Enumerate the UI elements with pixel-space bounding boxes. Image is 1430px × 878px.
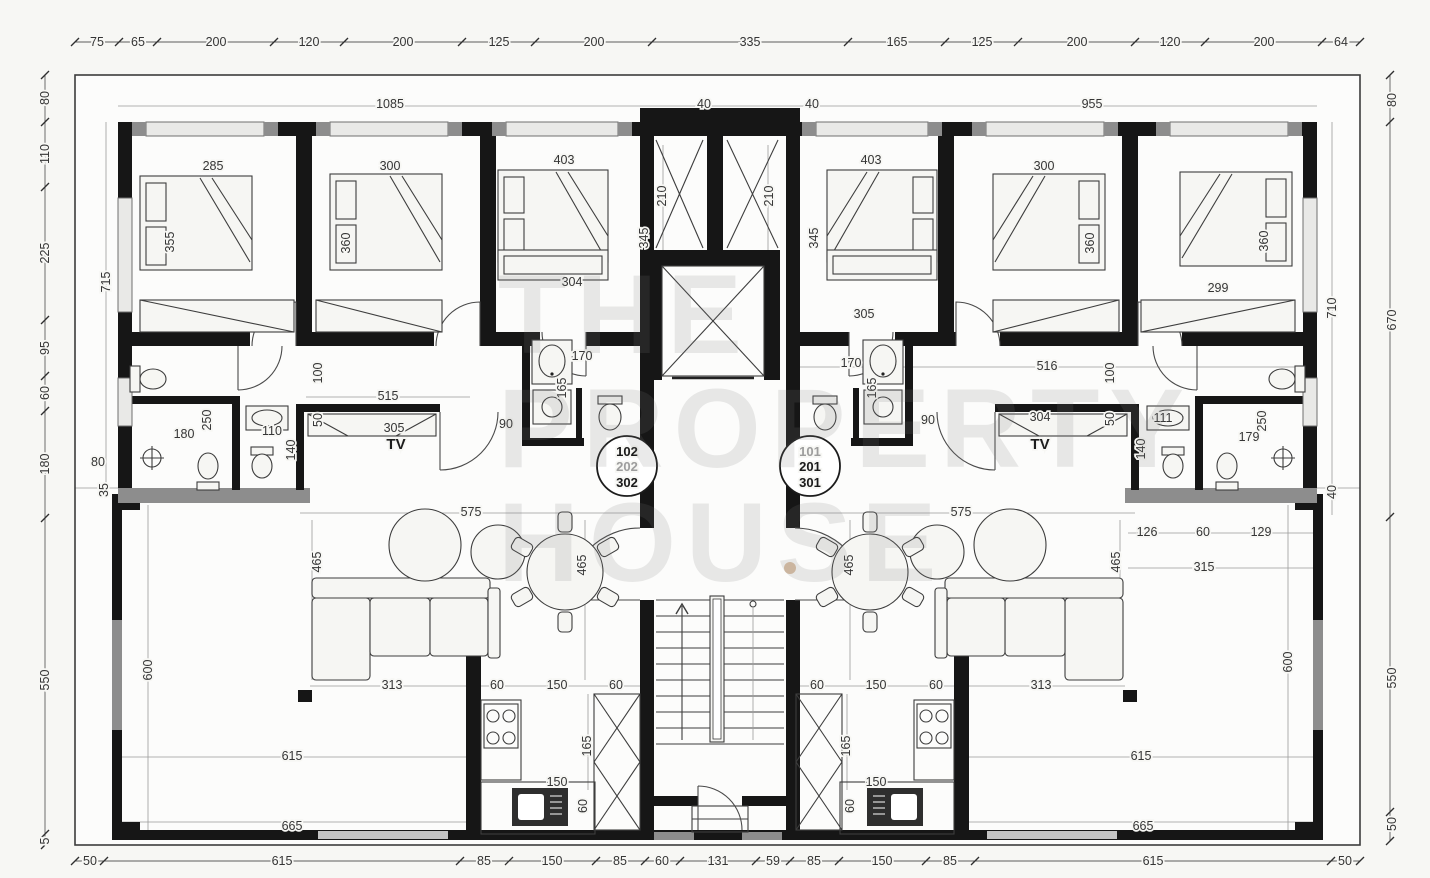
dim-label: 304 bbox=[562, 275, 583, 289]
dim-label: 516 bbox=[1037, 359, 1058, 373]
dim-label: 360 bbox=[1257, 231, 1271, 252]
dim-label: 345 bbox=[807, 228, 821, 249]
dim-label: 60 bbox=[1196, 525, 1210, 539]
dim-label: 665 bbox=[1133, 819, 1154, 833]
dim-label: 165 bbox=[580, 736, 594, 757]
dim-label: 200 bbox=[206, 35, 227, 49]
dim-label: 59 bbox=[766, 854, 780, 868]
dim-label: 210 bbox=[655, 186, 669, 207]
dim-label: 200 bbox=[1067, 35, 1088, 49]
elevator-shaft-wall bbox=[646, 250, 780, 266]
dim-label: 165 bbox=[555, 378, 569, 399]
dim-label: 90 bbox=[499, 417, 513, 431]
dim-label: 300 bbox=[1034, 159, 1055, 173]
dim-label: 150 bbox=[866, 678, 887, 692]
dim-label: 304 bbox=[1030, 410, 1051, 424]
dim-label: 550 bbox=[1385, 668, 1399, 689]
dim-label: 150 bbox=[547, 678, 568, 692]
dim-label: 120 bbox=[1160, 35, 1181, 49]
dim-label: 110 bbox=[262, 424, 282, 438]
dim-label: 120 bbox=[299, 35, 320, 49]
dim-label: 670 bbox=[1385, 310, 1399, 331]
dim-label: 200 bbox=[584, 35, 605, 49]
dim-label: 305 bbox=[854, 307, 875, 321]
dim-label: 60 bbox=[655, 854, 669, 868]
dim-label: 95 bbox=[38, 341, 52, 355]
dim-label: 131 bbox=[708, 854, 729, 868]
dim-label: 165 bbox=[839, 736, 853, 757]
dim-label: 313 bbox=[1031, 678, 1052, 692]
dim-label: 125 bbox=[972, 35, 993, 49]
dim-label: 313 bbox=[382, 678, 403, 692]
dim-label: 465 bbox=[842, 555, 856, 576]
dim-label: 299 bbox=[1208, 281, 1229, 295]
dim-label: 615 bbox=[272, 854, 293, 868]
dim-label: 550 bbox=[38, 670, 52, 691]
dim-label: 170 bbox=[841, 356, 862, 370]
dim-label: 60 bbox=[810, 678, 824, 692]
dim-label: 150 bbox=[872, 854, 893, 868]
dim-label: 600 bbox=[1281, 652, 1295, 673]
floor-plan-canvas: 7565200120200125200335165125200120200645… bbox=[0, 0, 1430, 878]
unit-number: 202 bbox=[616, 459, 638, 474]
dim-label: 40 bbox=[697, 97, 711, 111]
dim-label: 250 bbox=[1255, 411, 1269, 432]
dim-label: 465 bbox=[1109, 552, 1123, 573]
dim-label: 403 bbox=[554, 153, 575, 167]
dim-label: 129 bbox=[1251, 525, 1272, 539]
dim-label: 465 bbox=[310, 552, 324, 573]
dim-label: 60 bbox=[490, 678, 504, 692]
dim-label: 150 bbox=[542, 854, 563, 868]
dim-label: 40 bbox=[1325, 485, 1339, 499]
dim-label: 300 bbox=[380, 159, 401, 173]
dim-label: 165 bbox=[887, 35, 908, 49]
dim-label: 615 bbox=[282, 749, 303, 763]
dim-label: 85 bbox=[477, 854, 491, 868]
dim-label: 35 bbox=[97, 483, 111, 497]
dim-label: 100 bbox=[1103, 363, 1117, 384]
dim-label: 165 bbox=[865, 378, 879, 399]
dim-label: 200 bbox=[393, 35, 414, 49]
dim-label: 615 bbox=[1143, 854, 1164, 868]
dim-label: 50 bbox=[83, 854, 97, 868]
unit-number: 301 bbox=[799, 475, 821, 490]
dim-label: 111 bbox=[1153, 411, 1172, 425]
dim-label: 85 bbox=[613, 854, 627, 868]
dim-label: 50 bbox=[311, 413, 325, 427]
dim-label: 50 bbox=[1385, 817, 1399, 831]
dim-label: 125 bbox=[489, 35, 510, 49]
dim-label: 180 bbox=[174, 427, 195, 441]
dim-label: 345 bbox=[637, 228, 651, 249]
dim-label: 60 bbox=[576, 799, 590, 813]
dim-label: 40 bbox=[805, 97, 819, 111]
dim-label: 465 bbox=[575, 555, 589, 576]
dim-label: 1085 bbox=[376, 97, 404, 111]
dim-label: 5 bbox=[38, 837, 52, 844]
dim-label: 710 bbox=[1325, 298, 1339, 319]
dim-label: 210 bbox=[762, 186, 776, 207]
dim-label: 85 bbox=[943, 854, 957, 868]
unit-number: 102 bbox=[616, 444, 638, 459]
dim-label: 200 bbox=[1254, 35, 1275, 49]
dim-label: 170 bbox=[572, 349, 593, 363]
dim-label: 90 bbox=[921, 413, 935, 427]
dim-label: 315 bbox=[1194, 560, 1215, 574]
dim-label: 110 bbox=[38, 144, 52, 164]
dim-label: 305 bbox=[384, 421, 405, 435]
dim-label: 715 bbox=[99, 272, 113, 293]
dim-label: 64 bbox=[1334, 35, 1348, 49]
dim-label: 360 bbox=[339, 233, 353, 254]
dim-label: 575 bbox=[951, 505, 972, 519]
dim-label: 335 bbox=[740, 35, 761, 49]
unit-number: 101 bbox=[799, 444, 821, 459]
dim-label: 140 bbox=[284, 440, 298, 461]
dim-label: 60 bbox=[929, 678, 943, 692]
room-tag: TV bbox=[386, 436, 405, 453]
unit-number: 201 bbox=[799, 459, 821, 474]
dim-label: 65 bbox=[131, 35, 145, 49]
dim-label: 360 bbox=[1083, 233, 1097, 254]
dim-label: 355 bbox=[163, 232, 177, 253]
dim-label: 85 bbox=[807, 854, 821, 868]
dim-label: 179 bbox=[1239, 430, 1260, 444]
dim-label: 126 bbox=[1137, 525, 1158, 539]
unit-number: 302 bbox=[616, 475, 638, 490]
dim-label: 50 bbox=[1338, 854, 1352, 868]
dim-label: 180 bbox=[38, 454, 52, 475]
dim-label: 75 bbox=[90, 35, 104, 49]
dim-label: 60 bbox=[843, 799, 857, 813]
dim-label: 665 bbox=[282, 819, 303, 833]
dim-label: 225 bbox=[38, 243, 52, 264]
dim-label: 60 bbox=[38, 386, 52, 400]
dim-label: 60 bbox=[609, 678, 623, 692]
dim-label: 515 bbox=[378, 389, 399, 403]
dim-label: 150 bbox=[866, 775, 887, 789]
dim-label: 403 bbox=[861, 153, 882, 167]
dim-label: 600 bbox=[141, 660, 155, 681]
dim-label: 80 bbox=[1385, 93, 1399, 107]
floor-plan-page: 7565200120200125200335165125200120200645… bbox=[0, 0, 1430, 878]
dim-label: 50 bbox=[1103, 412, 1117, 426]
room-tag: TV bbox=[1030, 436, 1049, 453]
dim-label: 955 bbox=[1082, 97, 1103, 111]
dim-label: 575 bbox=[461, 505, 482, 519]
dim-label: 140 bbox=[1134, 439, 1148, 460]
dim-label: 285 bbox=[203, 159, 224, 173]
scan-artifact bbox=[784, 562, 796, 574]
dim-label: 80 bbox=[91, 455, 105, 469]
dim-label: 150 bbox=[547, 775, 568, 789]
dim-label: 615 bbox=[1131, 749, 1152, 763]
dim-label: 100 bbox=[311, 363, 325, 384]
dim-label: 80 bbox=[38, 91, 52, 105]
dim-label: 250 bbox=[200, 410, 214, 431]
